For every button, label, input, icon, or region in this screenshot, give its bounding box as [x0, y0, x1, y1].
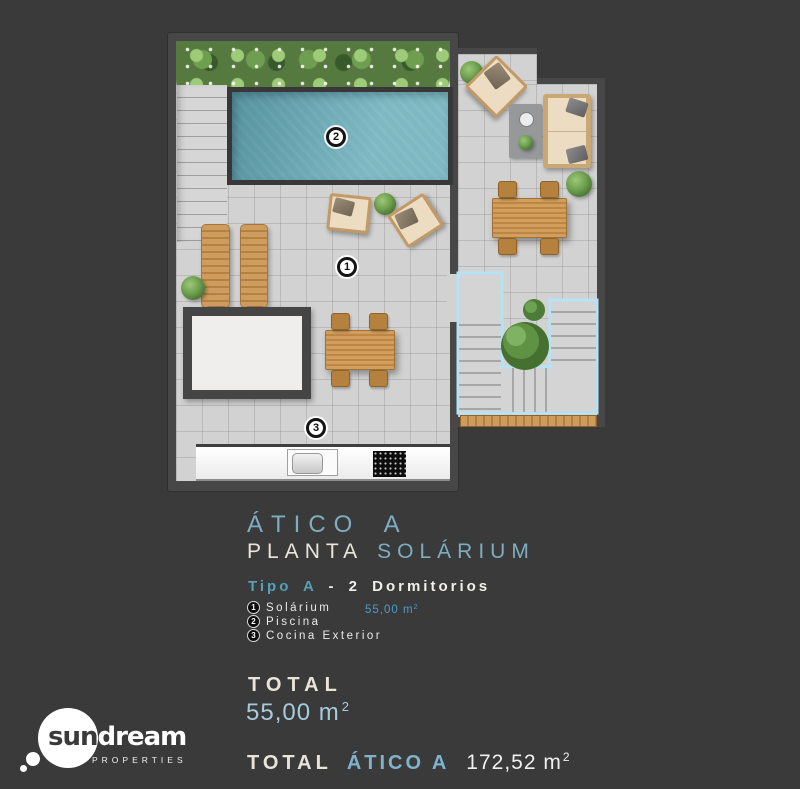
- potted-plant: [181, 276, 205, 300]
- outdoor-sofa: [543, 94, 591, 168]
- unit-type: Tipo A - 2 Dormitorios: [248, 578, 490, 595]
- legend-badge-1: 1: [248, 602, 259, 613]
- legend-badge-2: 2: [248, 616, 259, 627]
- potted-plant: [566, 171, 592, 197]
- table-plant: [518, 135, 533, 150]
- legend-value: 55,00 m2: [365, 602, 418, 616]
- sundream-logo: sundream PROPERTIES: [20, 698, 200, 783]
- dining-chair: [369, 313, 388, 330]
- grand-total-unit: ÁTICO A: [347, 752, 449, 774]
- dining-chair: [331, 313, 350, 330]
- legend: 1Solárium 55,00 m2 2Piscina 3Cocina Exte…: [248, 602, 568, 644]
- plan-label-pool: 2: [326, 127, 346, 147]
- legend-label: Piscina: [266, 616, 321, 628]
- cushion-seam: [548, 131, 586, 132]
- legend-badge-3: 3: [248, 630, 259, 641]
- plan-label-kitchen: 3: [306, 418, 326, 438]
- sink-bowl: [292, 453, 323, 474]
- cushion: [483, 62, 511, 90]
- legend-label: Solárium: [266, 602, 331, 614]
- logo-wordmark: sundream: [48, 722, 186, 752]
- grand-total-label: TOTAL: [247, 752, 332, 774]
- logo-tagline: PROPERTIES: [92, 755, 187, 765]
- legend-label: Cocina Exterior: [266, 630, 382, 642]
- outdoor-armchair: [326, 193, 372, 234]
- dining-chair: [540, 181, 559, 198]
- kitchen-sink: [287, 449, 338, 476]
- legend-item-piscina: 2Piscina: [248, 616, 568, 629]
- total-value: 55,00 m2: [246, 699, 348, 727]
- planta-label: PLANTA: [247, 540, 363, 563]
- legend-item-solarium: 1Solárium 55,00 m2: [248, 602, 568, 615]
- dining-chair: [331, 370, 350, 387]
- grand-total: TOTALÁTICO A172,52 m2: [247, 751, 570, 775]
- page-title: ÁTICO A: [247, 511, 408, 539]
- tray: [519, 112, 534, 127]
- wood-bench-strip: [460, 415, 597, 427]
- bedrooms-label: - 2 Dormitorios: [328, 578, 490, 595]
- stair-bushes: [501, 299, 549, 370]
- cushion: [332, 197, 355, 216]
- dining-table: [325, 330, 395, 370]
- grand-total-value: 172,52 m2: [466, 751, 569, 774]
- stair-bulkhead-room: [183, 307, 311, 399]
- terrace-steps: [177, 85, 227, 242]
- cushion: [394, 207, 419, 230]
- tipo-label: Tipo A: [248, 578, 316, 595]
- dining-table: [492, 198, 567, 238]
- logo-dot-icon: [26, 752, 40, 766]
- total-label: TOTAL: [248, 674, 343, 697]
- page-subtitle: PLANTASOLÁRIUM: [247, 540, 535, 564]
- floor-plan: 1 2 3: [165, 30, 610, 495]
- staircase: [453, 268, 600, 420]
- sun-lounger: [240, 224, 268, 308]
- dining-chair: [369, 370, 388, 387]
- solarium-label: SOLÁRIUM: [377, 540, 535, 563]
- dining-chair: [498, 238, 517, 255]
- legend-item-cocina: 3Cocina Exterior: [248, 630, 568, 643]
- plan-label-solarium: 1: [337, 257, 357, 277]
- dining-chair: [540, 238, 559, 255]
- dining-chair: [498, 181, 517, 198]
- sun-lounger: [201, 224, 230, 308]
- kitchen-grill: [373, 451, 406, 477]
- coffee-table: [509, 104, 542, 158]
- logo-dot-icon: [20, 765, 27, 772]
